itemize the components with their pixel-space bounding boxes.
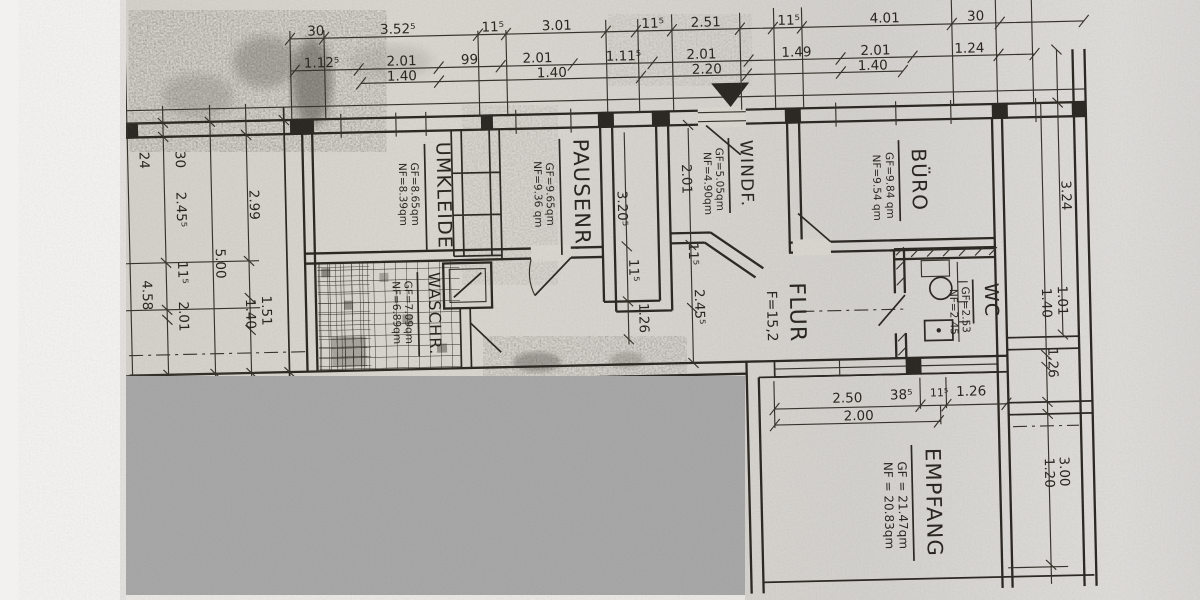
scanned-floorplan: 30 3.52⁵ 11⁵ 3.01 11⁵ 2.51 11⁵ 4.01 30 1…: [0, 0, 1200, 600]
floorplan-svg: 30 3.52⁵ 11⁵ 3.01 11⁵ 2.51 11⁵ 4.01 30 1…: [0, 0, 1200, 600]
page-margin-strip: [0, 0, 126, 600]
paper-grain: [126, 0, 1200, 600]
page-margin-edge: [120, 0, 126, 600]
